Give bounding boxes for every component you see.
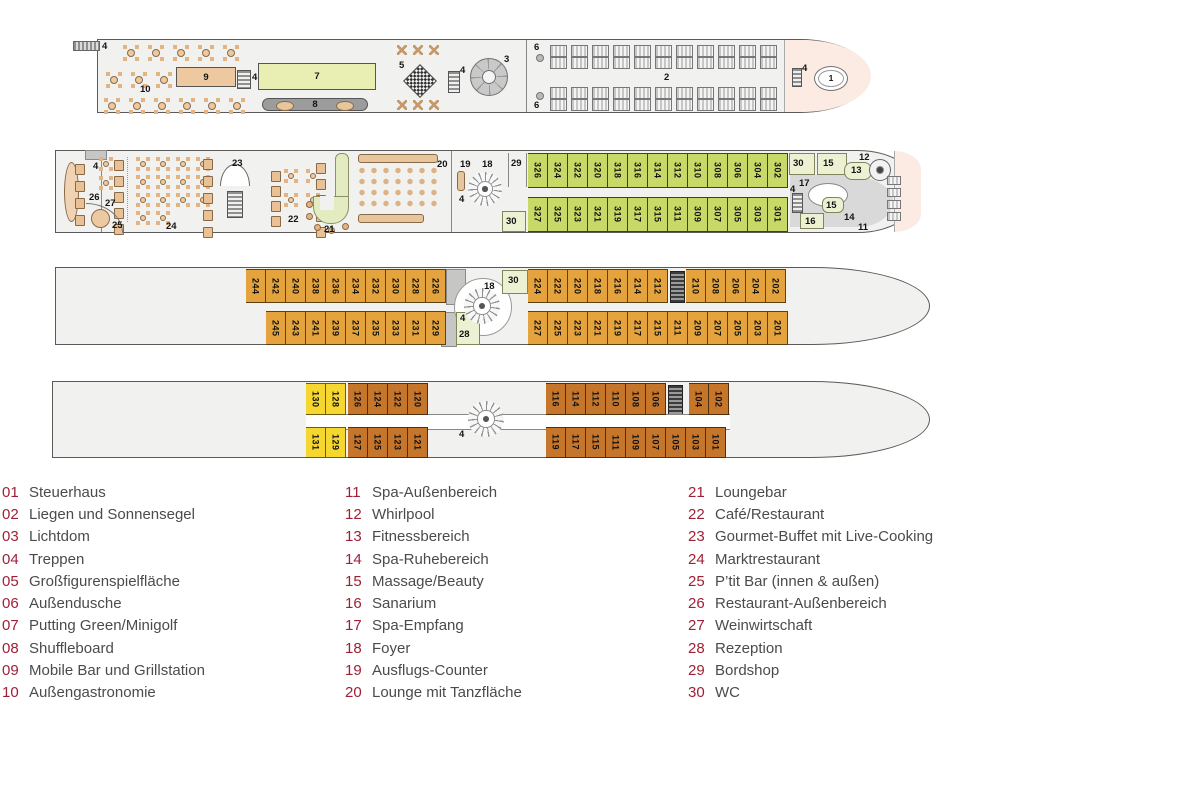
spiral-stairs-icon: [464, 288, 500, 324]
mobile-bar-grill: 9: [176, 67, 236, 87]
label-ausflugs-counter: 19: [460, 160, 471, 170]
cabin: 303: [748, 197, 768, 232]
chair-icon: [316, 163, 326, 174]
table-icon: [176, 175, 190, 189]
cabin: 238: [306, 269, 326, 303]
marktrestaurant-tables-row: [136, 211, 170, 225]
lounger-icon: [613, 87, 630, 99]
cabin: 219: [608, 311, 628, 345]
sun-loungers-row: [550, 45, 777, 57]
foyer-wall: [451, 151, 452, 232]
wheelhouse: 1: [814, 66, 848, 91]
legend-item: 27 Weinwirtschaft: [688, 615, 933, 637]
lounger-icon: [571, 57, 588, 69]
lounger-icon: [697, 57, 714, 69]
label-whirlpool: 12: [859, 153, 870, 163]
cabin: 127: [348, 427, 368, 458]
legend-item: 26 Restaurant-Außenbereich: [688, 592, 933, 614]
cabin: 226: [426, 269, 446, 303]
cabin: 220: [568, 269, 588, 303]
cabin: 232: [366, 269, 386, 303]
deck4-cabin-row: 127125123121: [348, 427, 428, 458]
label-spa-aussen: 11: [858, 223, 868, 233]
label-lounge: 20: [437, 160, 448, 170]
cabin: 208: [706, 269, 726, 303]
cabin: 212: [648, 269, 668, 303]
legend-item-number: 28: [688, 640, 712, 657]
legend-item-label: Fitnessbereich: [372, 528, 470, 545]
lounger-icon: [676, 87, 693, 99]
lounge-seating: [356, 165, 440, 211]
lounger-icon: [718, 99, 735, 111]
cabin: 315: [648, 197, 668, 232]
legend-item: 13 Fitnessbereich: [345, 526, 522, 548]
legend-item-number: 25: [688, 573, 712, 590]
legend-item-label: Spa-Außenbereich: [372, 484, 497, 501]
label-stairs: 4: [102, 42, 107, 52]
cabin: 305: [728, 197, 748, 232]
legend-item-number: 27: [688, 617, 712, 634]
cabin: 224: [528, 269, 548, 303]
marktrestaurant-tables-row: [136, 193, 210, 207]
cabin: 314: [648, 153, 668, 188]
legend-item-label: Massage/Beauty: [372, 573, 484, 590]
cabin: 312: [668, 153, 688, 188]
putting-green: 7: [258, 63, 376, 90]
table-icon: [176, 193, 190, 207]
label-stairs: 4: [790, 185, 795, 195]
gangway-icon: [73, 41, 100, 51]
legend-item: 15 Massage/Beauty: [345, 570, 522, 592]
legend-item-number: 07: [2, 617, 26, 634]
lounger-icon: [613, 57, 630, 69]
lounger-icon: [760, 57, 777, 69]
sun-loungers-row: [550, 99, 777, 111]
table-icon: [136, 211, 150, 225]
stairs-icon: [227, 191, 243, 218]
cabin: 223: [568, 311, 588, 345]
cabin: 324: [548, 153, 568, 188]
legend-item-label: Außengastronomie: [29, 684, 156, 701]
barstool-icon: [314, 224, 321, 231]
legend-item-number: 10: [2, 684, 26, 701]
deck4-cabin-row: 119117115111109107105103101: [546, 427, 726, 458]
cabin: 214: [628, 269, 648, 303]
chair-icon: [271, 216, 281, 227]
lounger-icon: [550, 45, 567, 57]
table-icon: [156, 157, 170, 171]
cabin: 316: [628, 153, 648, 188]
legend-item: 16 Sanarium: [345, 592, 522, 614]
cabin: 130: [306, 383, 326, 415]
deck3-cabin-row: 244242240238236234232230228226: [246, 269, 446, 303]
sun-loungers-row: [550, 87, 777, 99]
label-wc: 30: [508, 276, 519, 286]
cabin: 245: [266, 311, 286, 345]
label-stairs: 4: [252, 73, 257, 83]
lounger-icon: [655, 87, 672, 99]
cabin: 302: [768, 153, 788, 188]
chair-icon: [75, 198, 85, 209]
legend-item-label: Großfigurenspielfläche: [29, 573, 180, 590]
legend-item-number: 02: [2, 506, 26, 523]
lounger-icon: [550, 57, 567, 69]
cabin: 218: [588, 269, 608, 303]
stairs-icon: [448, 71, 460, 93]
legend-item-number: 20: [345, 684, 369, 701]
legend-item-number: 15: [345, 573, 369, 590]
deck4-cabin-row: 116114112110108106: [546, 383, 666, 415]
cabin: 201: [768, 311, 788, 345]
marktrestaurant-tables-row: [136, 175, 210, 189]
legend-item-number: 14: [345, 551, 369, 568]
barstool-icon: [306, 213, 313, 220]
cabin: 105: [666, 427, 686, 458]
cabin: 107: [646, 427, 666, 458]
lounger-icon: [634, 57, 651, 69]
cabin: 235: [366, 311, 386, 345]
spiral-stairs-icon: [468, 172, 502, 206]
cabin: 234: [346, 269, 366, 303]
label-spa-ruhe: 14: [844, 213, 855, 223]
cabin: 325: [548, 197, 568, 232]
cabin: 237: [346, 311, 366, 345]
lounge-bench: [358, 154, 438, 163]
legend-item: 01 Steuerhaus: [2, 481, 205, 503]
chair-icon: [75, 181, 85, 192]
giant-games-board: [403, 64, 437, 98]
label-dusche: 6: [534, 43, 539, 53]
legend-item-label: Foyer: [372, 640, 410, 657]
lounger-icon: [718, 57, 735, 69]
legend-item-label: Steuerhaus: [29, 484, 106, 501]
round-table-icon: [91, 209, 110, 228]
legend-item: 23 Gourmet-Buffet mit Live-Cooking: [688, 526, 933, 548]
cabin: 222: [548, 269, 568, 303]
cabin: 109: [626, 427, 646, 458]
cabin: 123: [388, 427, 408, 458]
legend-item-label: Außendusche: [29, 595, 122, 612]
legend-item-number: 09: [2, 662, 26, 679]
legend-item-label: Rezeption: [715, 640, 783, 657]
table-icon: [154, 98, 170, 114]
lounger-icon: [760, 99, 777, 111]
cabin: 326: [528, 153, 548, 188]
lounger-icon: [697, 45, 714, 57]
legend-item: 10 Außengastronomie: [2, 682, 205, 704]
lounger-icon: [613, 99, 630, 111]
label-bordshop: 29: [511, 159, 522, 169]
legend-item: 12 Whirlpool: [345, 503, 522, 525]
window-line: [127, 157, 128, 222]
deck4-cabin-row: 104102: [689, 383, 729, 415]
deck-cabins-200: 244242240238236234232230228226 18 4 28 3…: [55, 267, 930, 345]
shuffleboard: 8: [262, 98, 368, 111]
stairs-icon: [670, 271, 685, 303]
label-massage: 15: [823, 159, 834, 169]
legend-item-label: Mobile Bar und Grillstation: [29, 662, 205, 679]
lounger-icon: [571, 87, 588, 99]
stairs-icon: [792, 193, 803, 213]
legend-item-label: Whirlpool: [372, 506, 435, 523]
legend-item-label: Spa-Empfang: [372, 617, 464, 634]
label-mobile-bar: 9: [203, 72, 208, 83]
cabin: 204: [746, 269, 766, 303]
lichtdom-skylight: [470, 58, 508, 96]
label-massage: 15: [826, 201, 837, 211]
cafe-chairs-col: [271, 171, 281, 227]
cabin: 103: [686, 427, 706, 458]
chair-icon: [271, 201, 281, 212]
cabin: 308: [708, 153, 728, 188]
cabin: 217: [628, 311, 648, 345]
legend-item-number: 03: [2, 528, 26, 545]
cabin: 228: [406, 269, 426, 303]
lounger-icon: [550, 99, 567, 111]
shuffleboard-disc: [276, 101, 294, 111]
table-icon: [99, 176, 113, 190]
cabin: 319: [608, 197, 628, 232]
label-aussengastronomie: 10: [140, 85, 151, 95]
chair-icon: [114, 176, 124, 187]
shuffleboard-disc: [336, 101, 354, 111]
label-gourmet-buffet: 23: [232, 159, 243, 169]
weinwirtschaft-tables: [99, 157, 113, 190]
cabin: 120: [408, 383, 428, 415]
bulkhead-line: [526, 40, 527, 112]
label-weinwirtschaft: 27: [105, 199, 116, 209]
label-wc: 30: [793, 159, 804, 169]
label-stairs: 4: [459, 430, 464, 440]
loungebar-counter: [335, 153, 349, 201]
lounger-icon: [571, 99, 588, 111]
legend-item: 25 P’tit Bar (innen & außen): [688, 570, 933, 592]
legend-column-2: 11 Spa-Außenbereich 12 Whirlpool 13 Fitn…: [345, 481, 522, 704]
legend-item-label: P’tit Bar (innen & außen): [715, 573, 879, 590]
cabin: 221: [588, 311, 608, 345]
chair-icon: [203, 193, 213, 204]
cabin: 320: [588, 153, 608, 188]
cabin: 128: [326, 383, 346, 415]
cabin: 102: [709, 383, 729, 415]
label-liegen: 2: [664, 73, 669, 83]
cabin: 122: [388, 383, 408, 415]
legend-item: 11 Spa-Außenbereich: [345, 481, 522, 503]
deck3-cabin-row: 210208206204202: [686, 269, 786, 303]
legend-item-number: 21: [688, 484, 712, 501]
cabin: 311: [668, 197, 688, 232]
label-rezeption: 28: [459, 330, 470, 340]
deck4-cabin-row: 126124122120: [348, 383, 428, 415]
lounger-icon: [634, 87, 651, 99]
cabin: 116: [546, 383, 566, 415]
legend-item: 28 Rezeption: [688, 637, 933, 659]
cabin: 209: [688, 311, 708, 345]
lounge-bench: [358, 214, 424, 223]
label-restaurant-aussen: 26: [89, 193, 100, 203]
table-icon: [156, 72, 172, 88]
lounger-icon: [718, 87, 735, 99]
legend-item-number: 22: [688, 506, 712, 523]
lounger-icon: [592, 99, 609, 111]
legend-item: 08 Shuffleboard: [2, 637, 205, 659]
lounger-icon: [655, 57, 672, 69]
cabin: 125: [368, 427, 388, 458]
legend-item: 29 Bordshop: [688, 659, 933, 681]
loungebar-inner: [320, 196, 334, 210]
legend-item-number: 24: [688, 551, 712, 568]
cabin: 104: [689, 383, 709, 415]
cabin: 210: [686, 269, 706, 303]
lounger-icon: [697, 87, 714, 99]
folding-chair-icon: [397, 45, 407, 55]
outdoor-chairs-col: [75, 164, 85, 226]
cabin: 229: [426, 311, 446, 345]
lounger-icon: [887, 212, 901, 221]
stairs-icon: [668, 385, 683, 415]
table-icon: [123, 45, 139, 61]
table-icon: [179, 98, 195, 114]
lounger-icon: [592, 57, 609, 69]
cabin: 301: [768, 197, 788, 232]
legend-item-number: 11: [345, 484, 369, 501]
legend-item-label: Lounge mit Tanzfläche: [372, 684, 522, 701]
table-icon: [129, 98, 145, 114]
legend-item: 14 Spa-Ruhebereich: [345, 548, 522, 570]
cabin: 231: [406, 311, 426, 345]
legend-item: 19 Ausflugs-Counter: [345, 659, 522, 681]
table-icon: [136, 157, 150, 171]
legend-item-number: 04: [2, 551, 26, 568]
lounger-icon: [739, 87, 756, 99]
sun-loungers-row: [550, 57, 777, 69]
legend-item-label: Ausflugs-Counter: [372, 662, 488, 679]
cabin: 205: [728, 311, 748, 345]
table-icon: [156, 193, 170, 207]
deck3-cabin-row: 224222220218216214212: [528, 269, 668, 303]
cabin: 110: [606, 383, 626, 415]
folding-chair-icon: [413, 45, 423, 55]
legend-item: 30 WC: [688, 682, 933, 704]
cabin: 114: [566, 383, 586, 415]
label-dusche: 6: [534, 101, 539, 111]
cabin: 124: [368, 383, 388, 415]
cabin: 115: [586, 427, 606, 458]
cabin: 225: [548, 311, 568, 345]
legend-item-number: 23: [688, 528, 712, 545]
legend-item-label: Bordshop: [715, 662, 779, 679]
label-stairs: 4: [460, 66, 465, 76]
cabin: 121: [408, 427, 428, 458]
chair-icon: [316, 179, 326, 190]
cabin: 230: [386, 269, 406, 303]
legend-item-number: 30: [688, 684, 712, 701]
cabin: 216: [608, 269, 628, 303]
legend-item-label: Spa-Ruhebereich: [372, 551, 489, 568]
legend-item: 02 Liegen und Sonnensegel: [2, 503, 205, 525]
legend-item-label: Putting Green/Minigolf: [29, 617, 177, 634]
deck3-cabin-row: 245243241239237235233231229: [266, 311, 446, 345]
cabin: 202: [766, 269, 786, 303]
table-icon: [106, 72, 122, 88]
cabin: 243: [286, 311, 306, 345]
cabin: 241: [306, 311, 326, 345]
legend-item-label: Treppen: [29, 551, 84, 568]
lounger-icon: [739, 99, 756, 111]
cabin: 111: [606, 427, 626, 458]
lounger-icon: [571, 45, 588, 57]
folding-chair-icon: [397, 100, 407, 110]
legend-item-number: 06: [2, 595, 26, 612]
cabin: 306: [728, 153, 748, 188]
table-icon: [284, 169, 298, 183]
legend-item: 21 Loungebar: [688, 481, 933, 503]
legend-item: 07 Putting Green/Minigolf: [2, 615, 205, 637]
lounger-icon: [739, 45, 756, 57]
label-shuffleboard: 8: [312, 99, 317, 110]
legend-item-label: Café/Restaurant: [715, 506, 824, 523]
cabin: 117: [566, 427, 586, 458]
legend-item-number: 17: [345, 617, 369, 634]
legend-item-number: 29: [688, 662, 712, 679]
cabin: 106: [646, 383, 666, 415]
label-stairs: 4: [802, 64, 807, 74]
table-icon: [99, 157, 113, 171]
cabin: 131: [306, 427, 326, 458]
table-icon: [136, 175, 150, 189]
marktrestaurant-tables-row: [136, 157, 210, 171]
shower-icon: [536, 92, 544, 100]
legend-item-number: 26: [688, 595, 712, 612]
chairs-col: [203, 159, 213, 238]
legend-item-number: 01: [2, 484, 26, 501]
cabin: 322: [568, 153, 588, 188]
legend-item-label: Gourmet-Buffet mit Live-Cooking: [715, 528, 933, 545]
cabin: 101: [706, 427, 726, 458]
ship-deck-plan: 4 10 9 4 7 8 5 4: [0, 0, 1200, 794]
cabin: 323: [568, 197, 588, 232]
lounger-icon: [718, 45, 735, 57]
deck-restaurant-spa: 4 26 27 25 24 23: [55, 150, 920, 233]
chair-icon: [203, 159, 213, 170]
legend-item: 22 Café/Restaurant: [688, 503, 933, 525]
label-stairs: 4: [93, 162, 98, 172]
lounger-icon: [655, 45, 672, 57]
cabin: 126: [348, 383, 368, 415]
table-icon: [148, 45, 164, 61]
legend-item: 06 Außendusche: [2, 592, 205, 614]
table-icon: [176, 157, 190, 171]
deck-chairs-top: [397, 45, 439, 55]
cafe-tables-row: [284, 169, 320, 183]
lounger-icon: [634, 45, 651, 57]
label-spa-empfang: 17: [799, 179, 810, 189]
folding-chair-icon: [413, 100, 423, 110]
chair-icon: [114, 160, 124, 171]
chair-icon: [271, 186, 281, 197]
excursion-counter: [457, 171, 465, 191]
lounger-icon: [697, 99, 714, 111]
table-icon: [284, 193, 298, 207]
lounger-icon: [676, 57, 693, 69]
legend-item-label: Sanarium: [372, 595, 436, 612]
label-sanarium: 16: [805, 217, 816, 227]
cabin: 236: [326, 269, 346, 303]
legend-item: 17 Spa-Empfang: [345, 615, 522, 637]
label-stairs: 4: [459, 195, 464, 205]
deck-cabins-100: 130128 126124122120 4 116114112110108106…: [52, 381, 930, 458]
legend-item: 20 Lounge mit Tanzfläche: [345, 682, 522, 704]
